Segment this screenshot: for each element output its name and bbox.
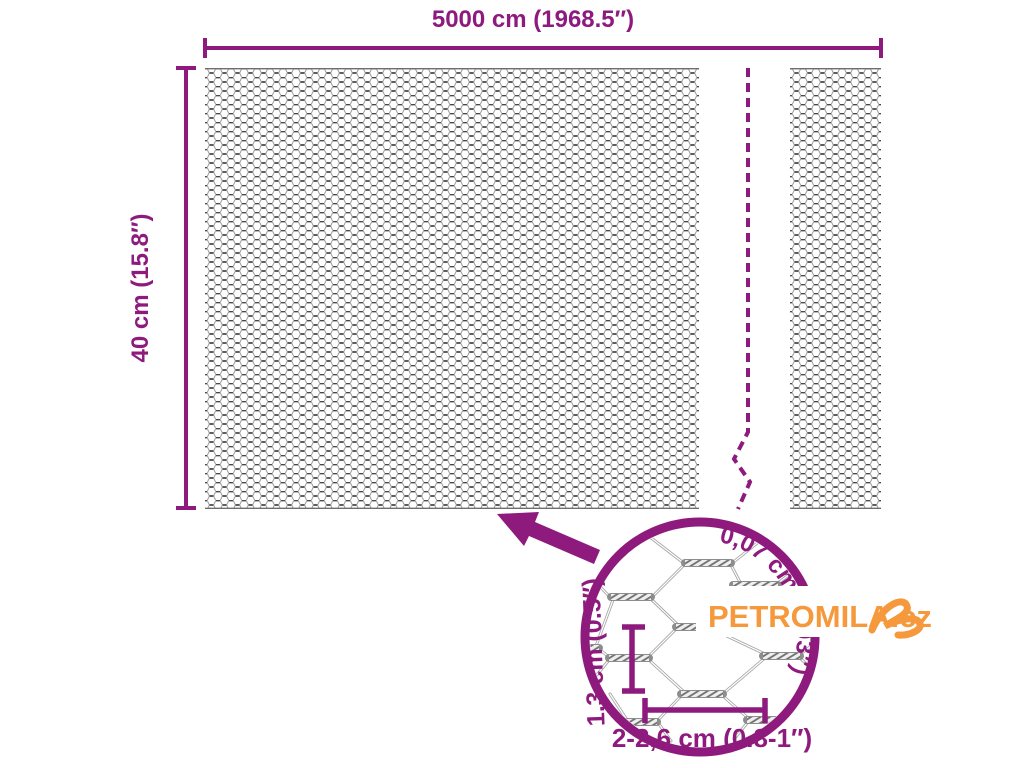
height-dimension: 40 cm (15.8″): [127, 68, 196, 508]
detail-circle: 1,3 cm (0.5″) 2-2,6 cm (0.8-1″) 0,07 cm …: [561, 521, 820, 753]
brand-watermark: PETROMILA.cz: [696, 586, 942, 637]
mesh-panel: [205, 68, 699, 509]
product-diagram-page: 5000 cm (1968.5″) 40 cm (15.8″) 1,3 cm (…: [0, 0, 1024, 768]
mesh-width-label: 2-2,6 cm (0.8-1″): [612, 723, 812, 753]
width-label: 5000 cm (1968.5″): [432, 6, 634, 33]
zoom-arrow-icon: [497, 512, 600, 564]
mesh-height-label: 1,3 cm (0.5″): [577, 578, 610, 727]
width-dimension: 5000 cm (1968.5″): [205, 6, 881, 58]
mesh-panel-continued: [790, 68, 881, 509]
product-diagram: 5000 cm (1968.5″) 40 cm (15.8″) 1,3 cm (…: [0, 0, 1024, 768]
height-label: 40 cm (15.8″): [127, 214, 154, 363]
panel-break-line: [734, 68, 750, 509]
